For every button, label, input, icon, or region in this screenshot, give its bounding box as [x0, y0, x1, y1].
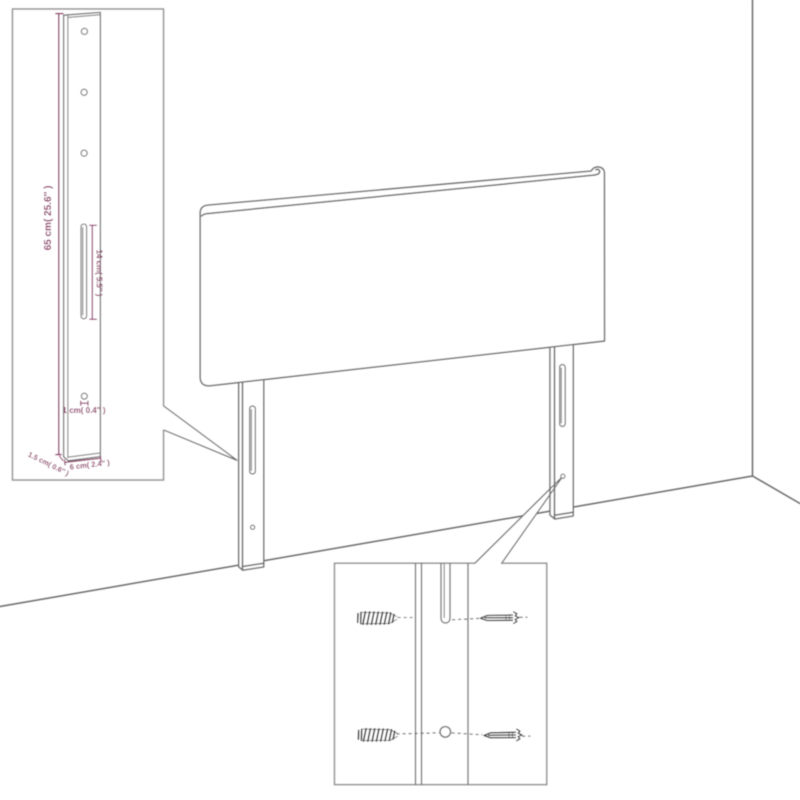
svg-text:14 cm( 5.5″ ): 14 cm( 5.5″ ) — [95, 250, 104, 297]
svg-text:65 cm( 25.6″ ): 65 cm( 25.6″ ) — [43, 186, 54, 251]
svg-text:1 cm( 0.4″ ): 1 cm( 0.4″ ) — [63, 406, 106, 415]
